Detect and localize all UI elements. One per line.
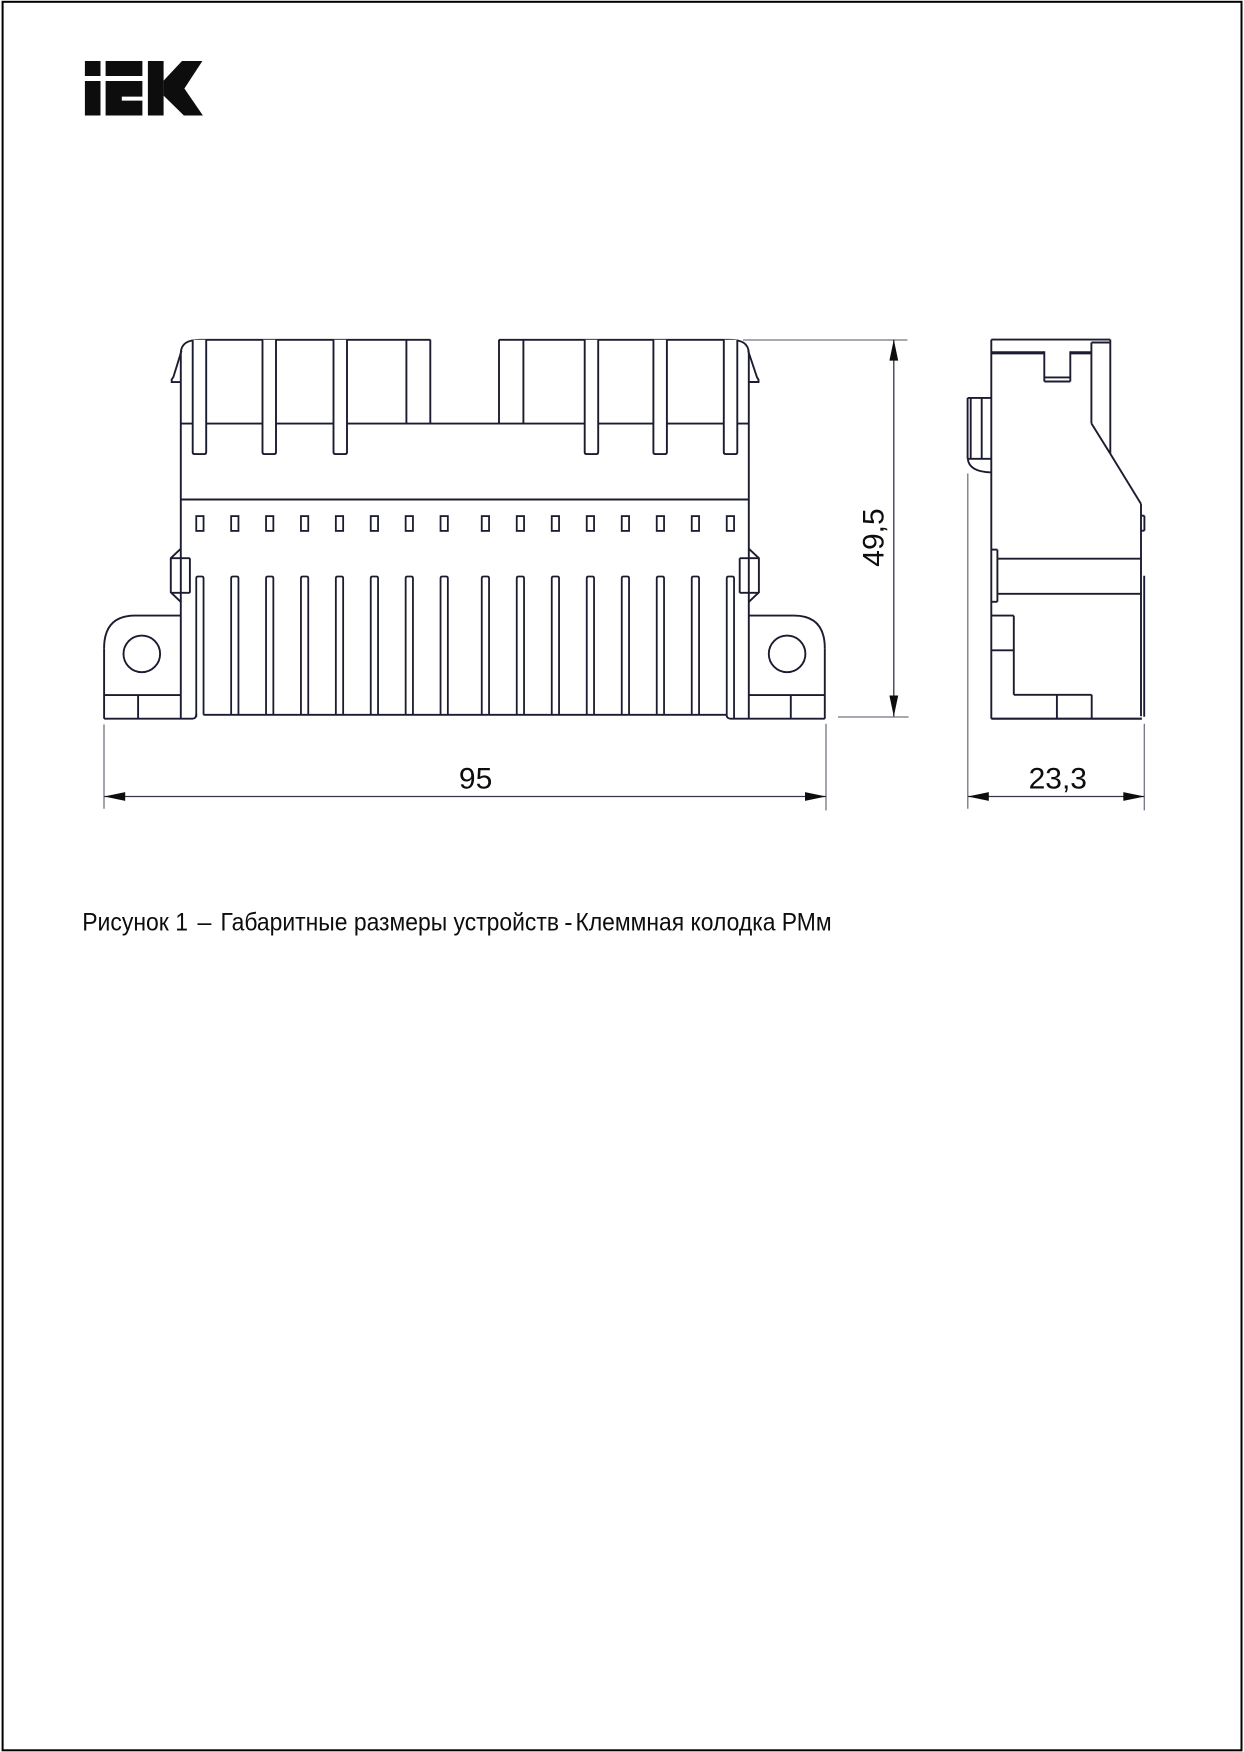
svg-text:-: -: [564, 909, 572, 937]
svg-text:Габаритные размеры устройств: Габаритные размеры устройств: [221, 909, 560, 937]
svg-text:95: 95: [459, 762, 492, 795]
svg-text:Клеммная колодка РМм: Клеммная колодка РМм: [576, 909, 832, 937]
svg-text:49,5: 49,5: [858, 508, 891, 566]
svg-text:–: –: [198, 909, 212, 937]
svg-text:23,3: 23,3: [1029, 762, 1087, 795]
svg-text:Рисунок 1: Рисунок 1: [82, 909, 188, 937]
